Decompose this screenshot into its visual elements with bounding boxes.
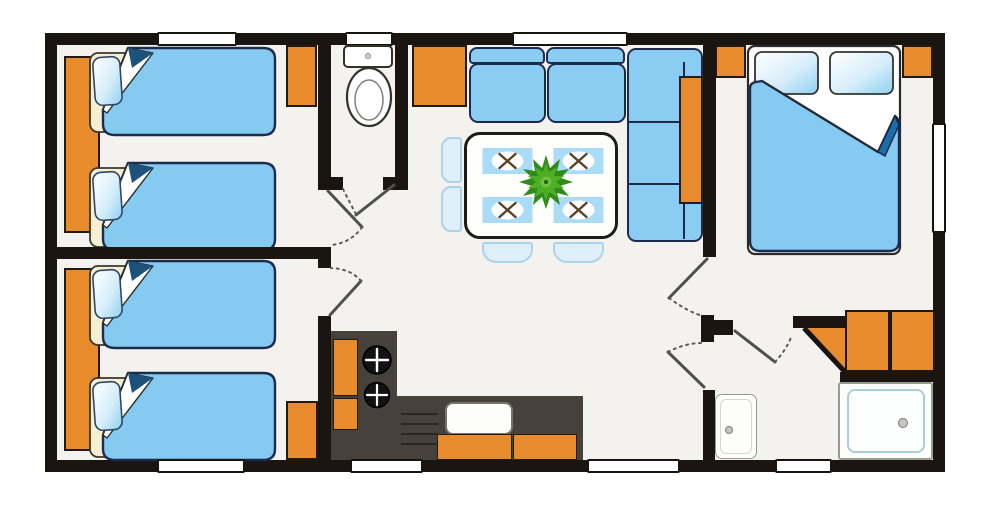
wall-living-master <box>703 45 716 257</box>
wall-bathroom-top <box>793 316 845 328</box>
dining-chair-3 <box>482 242 533 263</box>
kitchen-sink <box>445 402 513 435</box>
window-bathroom <box>775 459 832 473</box>
window-kitchen <box>350 459 423 473</box>
window-bedroom2 <box>157 459 245 473</box>
dining-chair-2 <box>441 186 462 232</box>
wall-stub <box>331 177 343 190</box>
wall-hall-t-vertical <box>701 315 714 342</box>
wall-bedroom2-kitchen <box>318 316 331 460</box>
cabinet-bedroom-2 <box>286 401 318 460</box>
kitchen-cabinet-front-2 <box>513 434 577 460</box>
bedside-cabinet-left <box>715 45 746 78</box>
sofa-back-cushion-2 <box>546 47 625 64</box>
wall-stub <box>318 247 331 268</box>
window-bedroom1 <box>157 32 237 46</box>
sofa-seam <box>629 121 684 123</box>
dining-table <box>464 132 618 239</box>
washbasin-inner <box>720 399 752 454</box>
wall-wc-right <box>395 45 408 190</box>
window-dining <box>587 459 680 473</box>
sofa-back-cushion-1 <box>469 47 545 64</box>
window-wc <box>345 32 393 46</box>
wall-bedroom1-wc <box>318 45 331 190</box>
sofa-seat-2 <box>547 63 626 123</box>
window-master <box>932 123 946 233</box>
storage-unit-door-2 <box>890 310 935 372</box>
twin-bed-4 <box>88 370 278 463</box>
wall-between-bedrooms <box>57 247 331 259</box>
kitchen-cabinet-front-1 <box>437 434 512 460</box>
twin-bed-1 <box>88 45 278 138</box>
kitchen-cabinet-door-1 <box>333 339 358 396</box>
wall-stub <box>383 177 395 190</box>
pillow-right <box>830 52 893 94</box>
sofa-seam <box>629 183 684 185</box>
shower-tray-inner <box>847 389 925 453</box>
twin-bed-3 <box>88 258 278 351</box>
kitchen-cabinet-door-2 <box>333 398 358 430</box>
storage-unit-door-1 <box>845 310 890 372</box>
wall-bathroom-left <box>703 390 715 460</box>
wall-hall-t-arm <box>714 320 733 335</box>
sofa-seat-1 <box>469 63 546 123</box>
cabinet-living <box>412 45 467 107</box>
window-living <box>512 32 628 46</box>
wall-storage-bottom <box>840 372 937 382</box>
floorplan-canvas <box>0 0 1000 515</box>
bedside-cabinet-right <box>902 45 933 78</box>
dining-chair-1 <box>441 137 462 183</box>
double-bed <box>746 44 902 256</box>
twin-bed-2 <box>88 160 278 253</box>
dining-chair-4 <box>553 242 604 263</box>
cabinet-bedroom-1 <box>286 45 317 107</box>
sofa-side-console <box>679 76 703 204</box>
